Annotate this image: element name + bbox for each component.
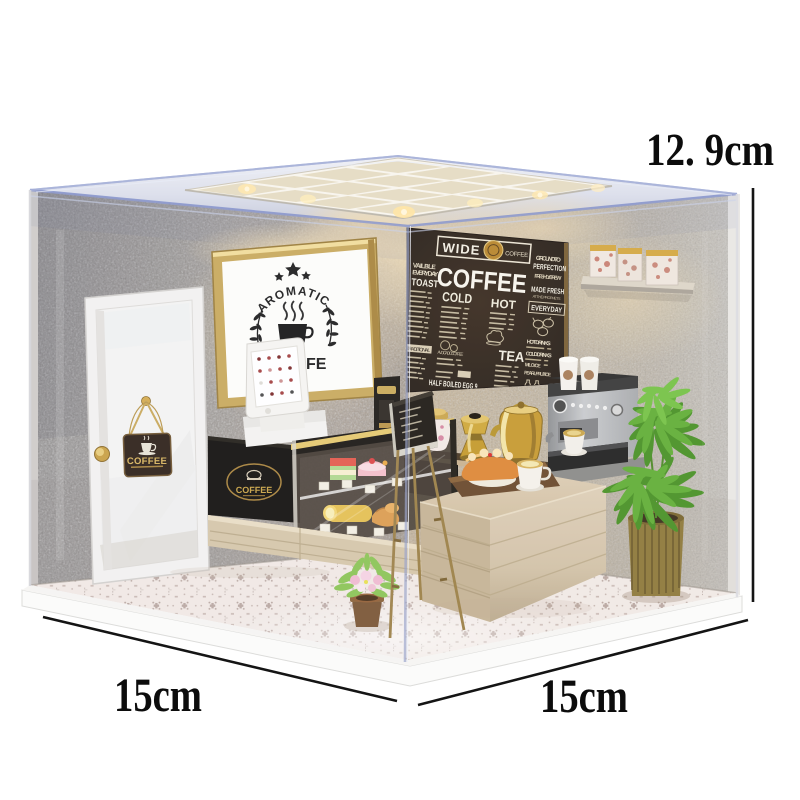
svg-text:15cm: 15cm	[540, 670, 628, 723]
svg-text:12. 9cm: 12. 9cm	[646, 124, 774, 175]
svg-text:15cm: 15cm	[114, 669, 202, 722]
